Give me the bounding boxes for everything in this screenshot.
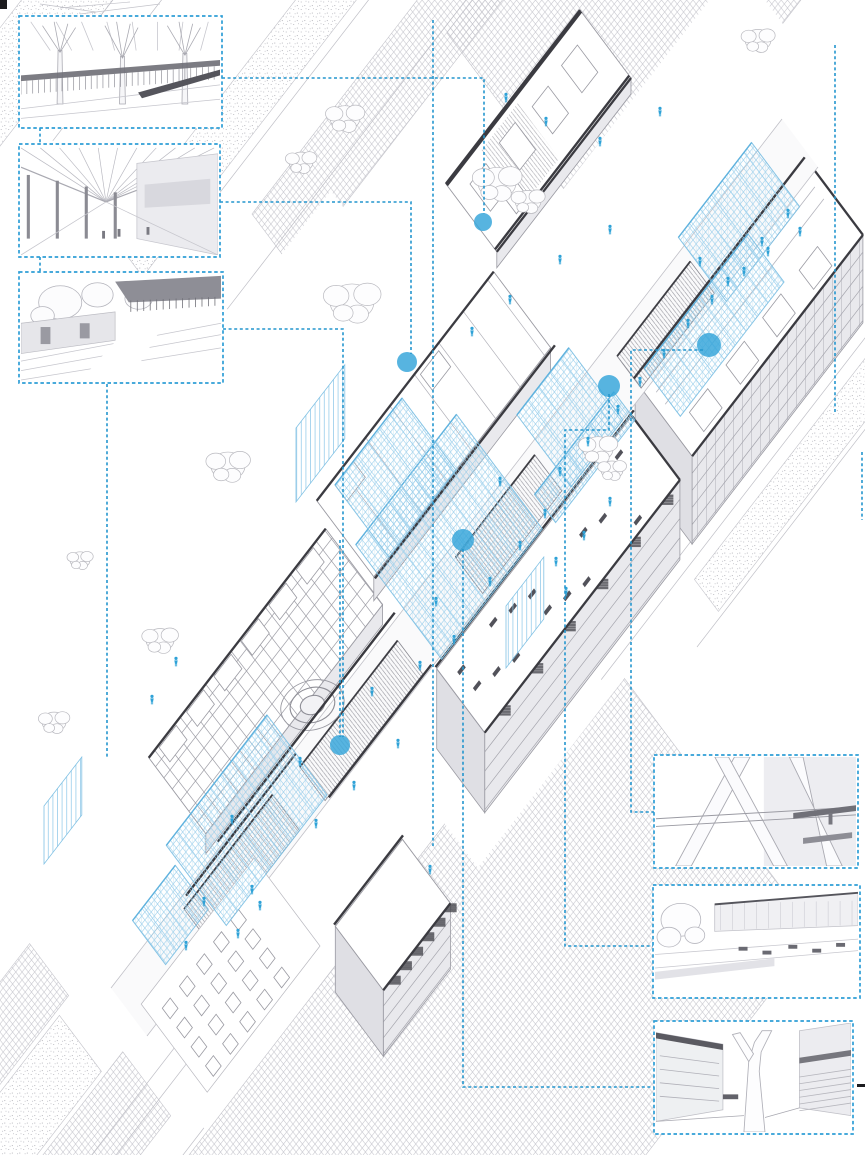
callout-node <box>397 352 417 372</box>
site-axonometric-drawing: Axonometric campus site diagram with das… <box>0 0 865 1155</box>
architectural-axonometric-page: Axonometric campus site diagram with das… <box>0 0 865 1155</box>
inset-6-callout <box>654 1021 853 1134</box>
black-mark <box>857 1084 865 1087</box>
inset-5-callout <box>653 885 860 998</box>
inset-2-callout <box>19 144 220 257</box>
inset-1-callout <box>19 16 222 128</box>
callout-node <box>330 735 350 755</box>
callout-node <box>598 375 620 397</box>
callout-node <box>697 333 721 357</box>
black-mark <box>0 0 7 9</box>
inset-3-callout <box>19 272 223 383</box>
callout-node <box>474 213 492 231</box>
inset-4-callout <box>654 755 858 868</box>
callout-node <box>452 529 474 551</box>
